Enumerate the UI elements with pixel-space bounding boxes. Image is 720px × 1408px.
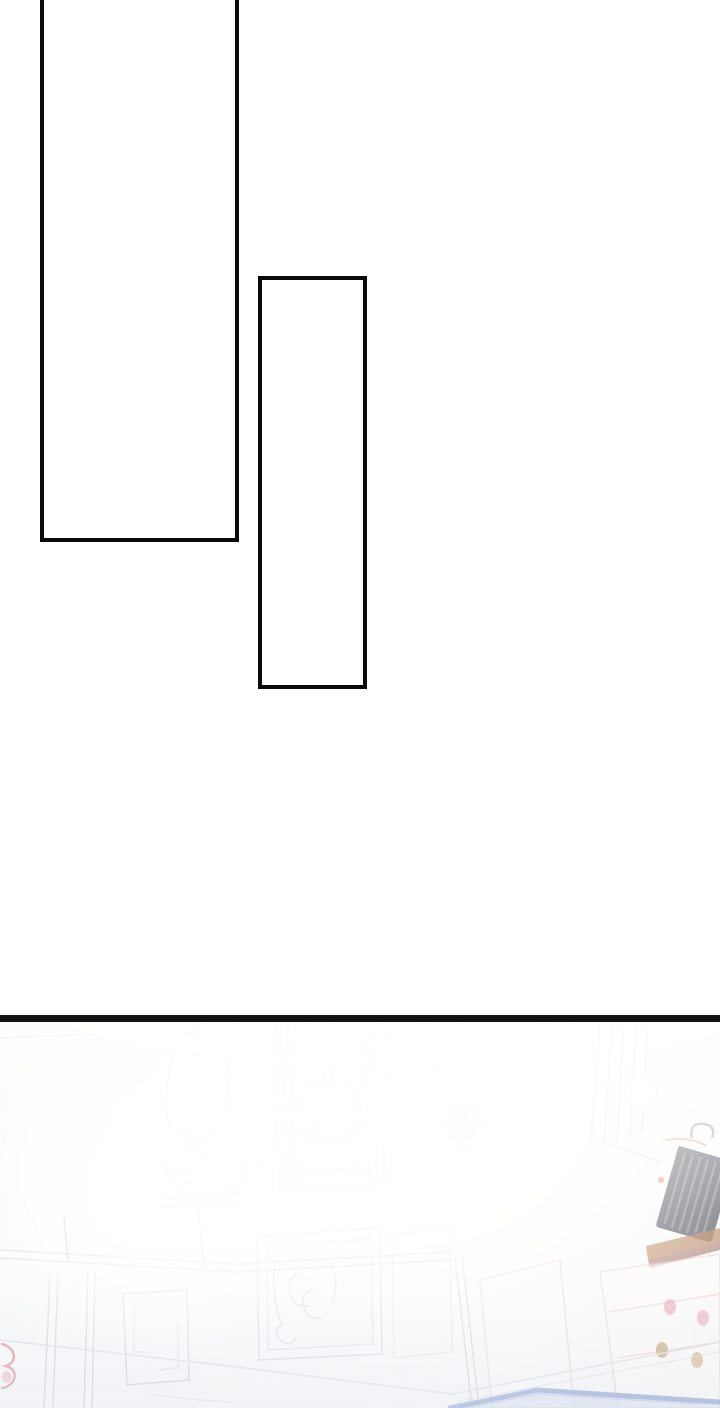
empty-panel-top [40,0,239,542]
empty-panel-bottom [258,276,367,689]
room-lineart [0,1022,720,1408]
wall-carving-ornament [148,1030,245,1208]
framed-pediment-crest [273,1022,392,1194]
orange-accent-dot [658,1177,664,1183]
wainscot-panels [123,1228,452,1385]
left-edge-pink-flower [2,1344,15,1388]
side-cabinet-with-knobs [455,1254,720,1408]
wainscot-rails [0,1204,452,1408]
ceiling-line [0,1034,96,1038]
pink-flower-cluster [443,1107,484,1148]
book-row [642,1115,720,1243]
palace-room-illustration [0,1022,720,1408]
panel-divider-line [0,1015,720,1022]
comic-page [0,0,720,1408]
